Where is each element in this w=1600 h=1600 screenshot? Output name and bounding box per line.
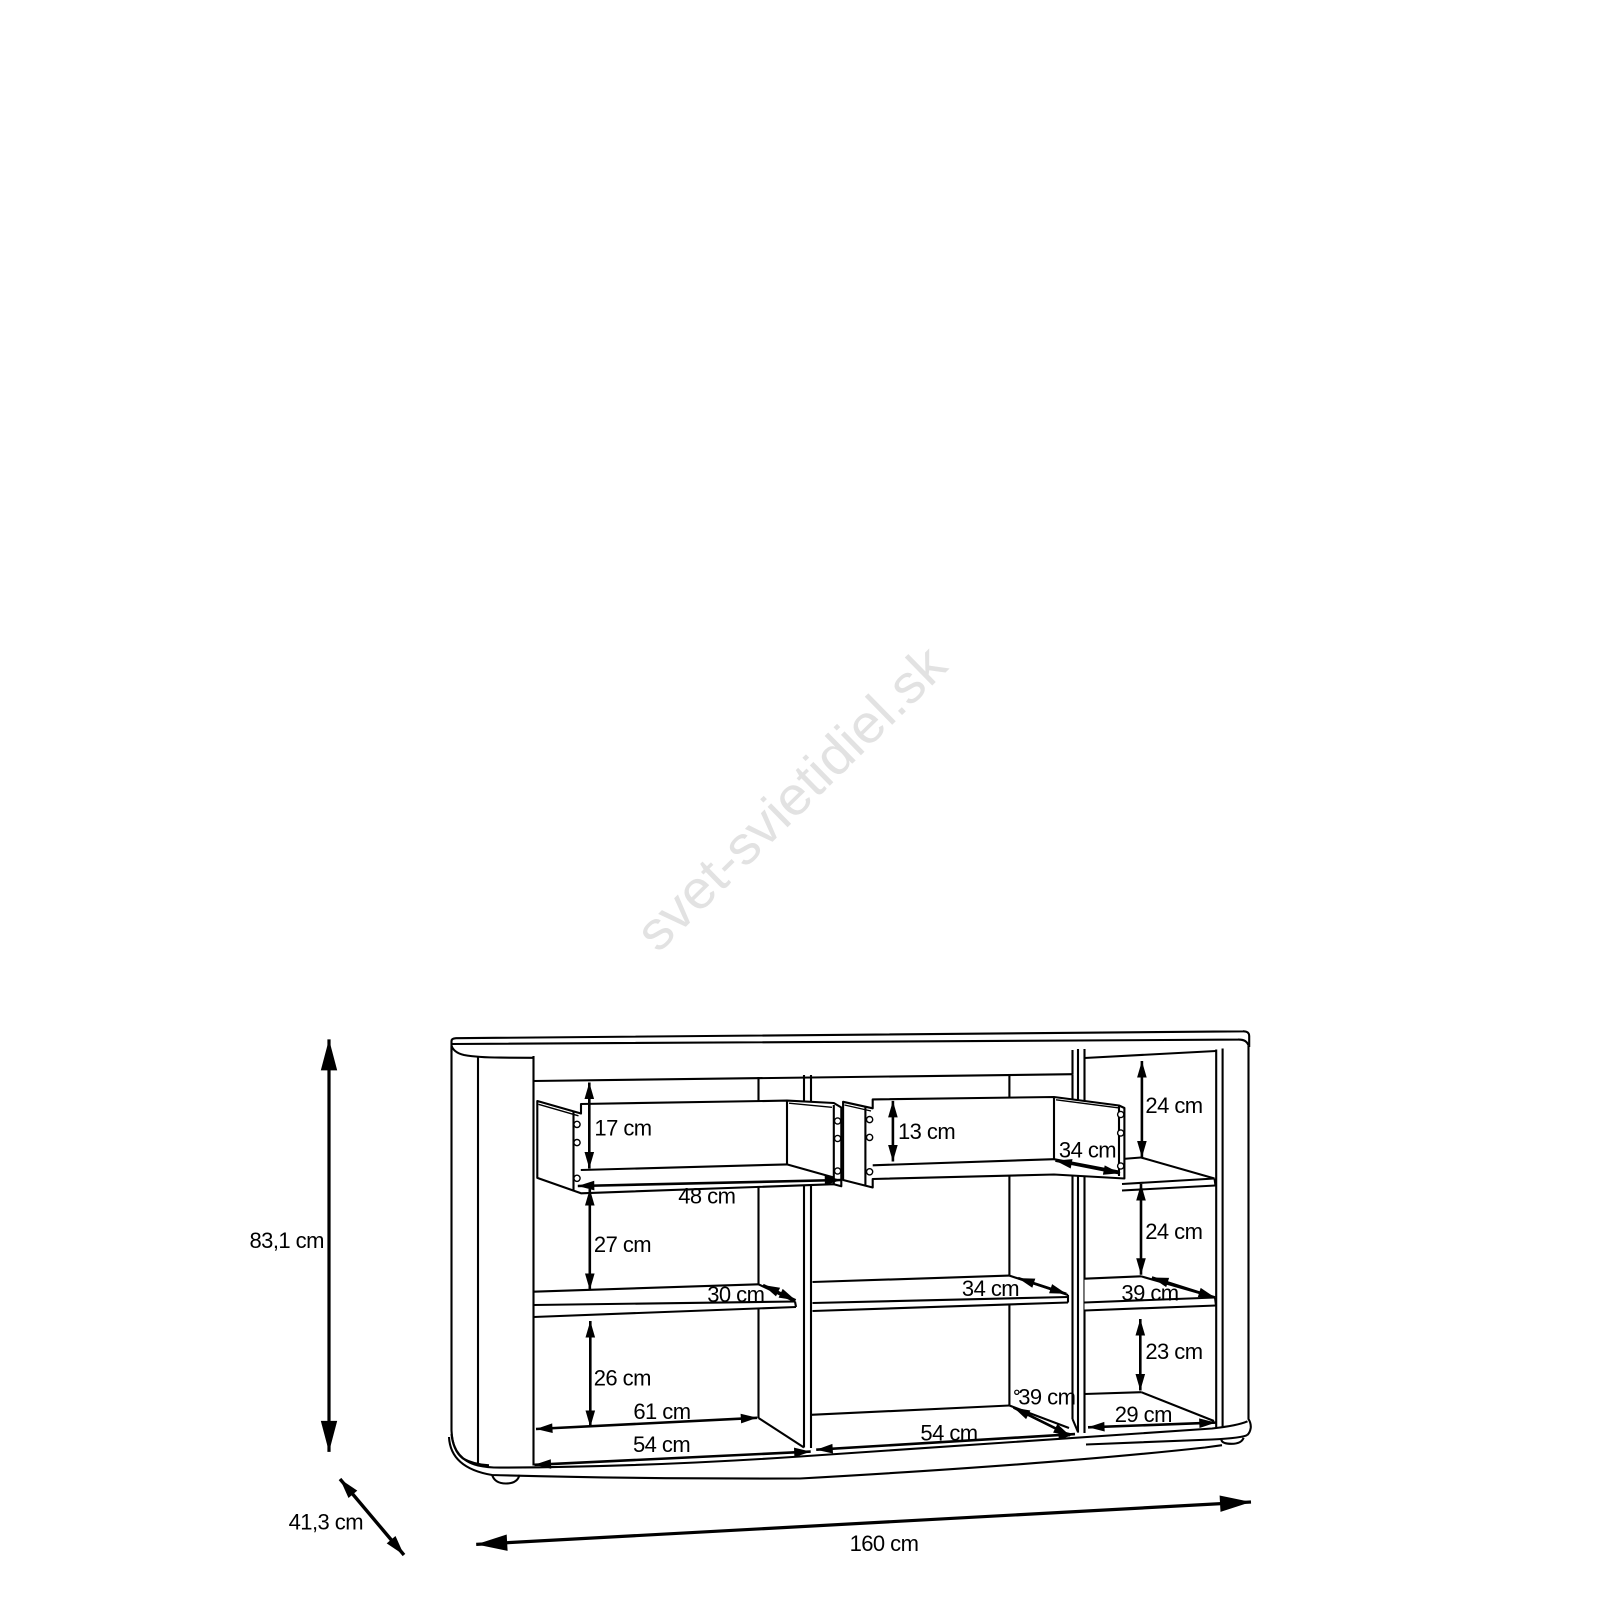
svg-text:29 cm: 29 cm bbox=[1115, 1402, 1172, 1427]
svg-text:24 cm: 24 cm bbox=[1145, 1219, 1202, 1244]
svg-text:27 cm: 27 cm bbox=[594, 1232, 651, 1257]
svg-text:41,3 cm: 41,3 cm bbox=[289, 1509, 363, 1534]
svg-text:54 cm: 54 cm bbox=[633, 1432, 690, 1457]
svg-text:13 cm: 13 cm bbox=[898, 1119, 955, 1144]
svg-text:83,1 cm: 83,1 cm bbox=[249, 1228, 323, 1253]
svg-text:54 cm: 54 cm bbox=[920, 1420, 977, 1445]
svg-text:61 cm: 61 cm bbox=[633, 1399, 690, 1424]
svg-text:48 cm: 48 cm bbox=[678, 1183, 735, 1208]
svg-text:34 cm: 34 cm bbox=[1059, 1138, 1116, 1163]
svg-text:39 cm: 39 cm bbox=[1018, 1385, 1075, 1410]
svg-text:24 cm: 24 cm bbox=[1145, 1093, 1202, 1118]
svg-text:17 cm: 17 cm bbox=[594, 1116, 651, 1141]
svg-text:23 cm: 23 cm bbox=[1145, 1339, 1202, 1364]
svg-text:160 cm: 160 cm bbox=[850, 1531, 919, 1556]
svg-text:34 cm: 34 cm bbox=[962, 1276, 1019, 1301]
svg-text:26 cm: 26 cm bbox=[594, 1365, 651, 1390]
svg-text:30 cm: 30 cm bbox=[707, 1282, 764, 1307]
svg-text:39 cm: 39 cm bbox=[1121, 1281, 1178, 1306]
